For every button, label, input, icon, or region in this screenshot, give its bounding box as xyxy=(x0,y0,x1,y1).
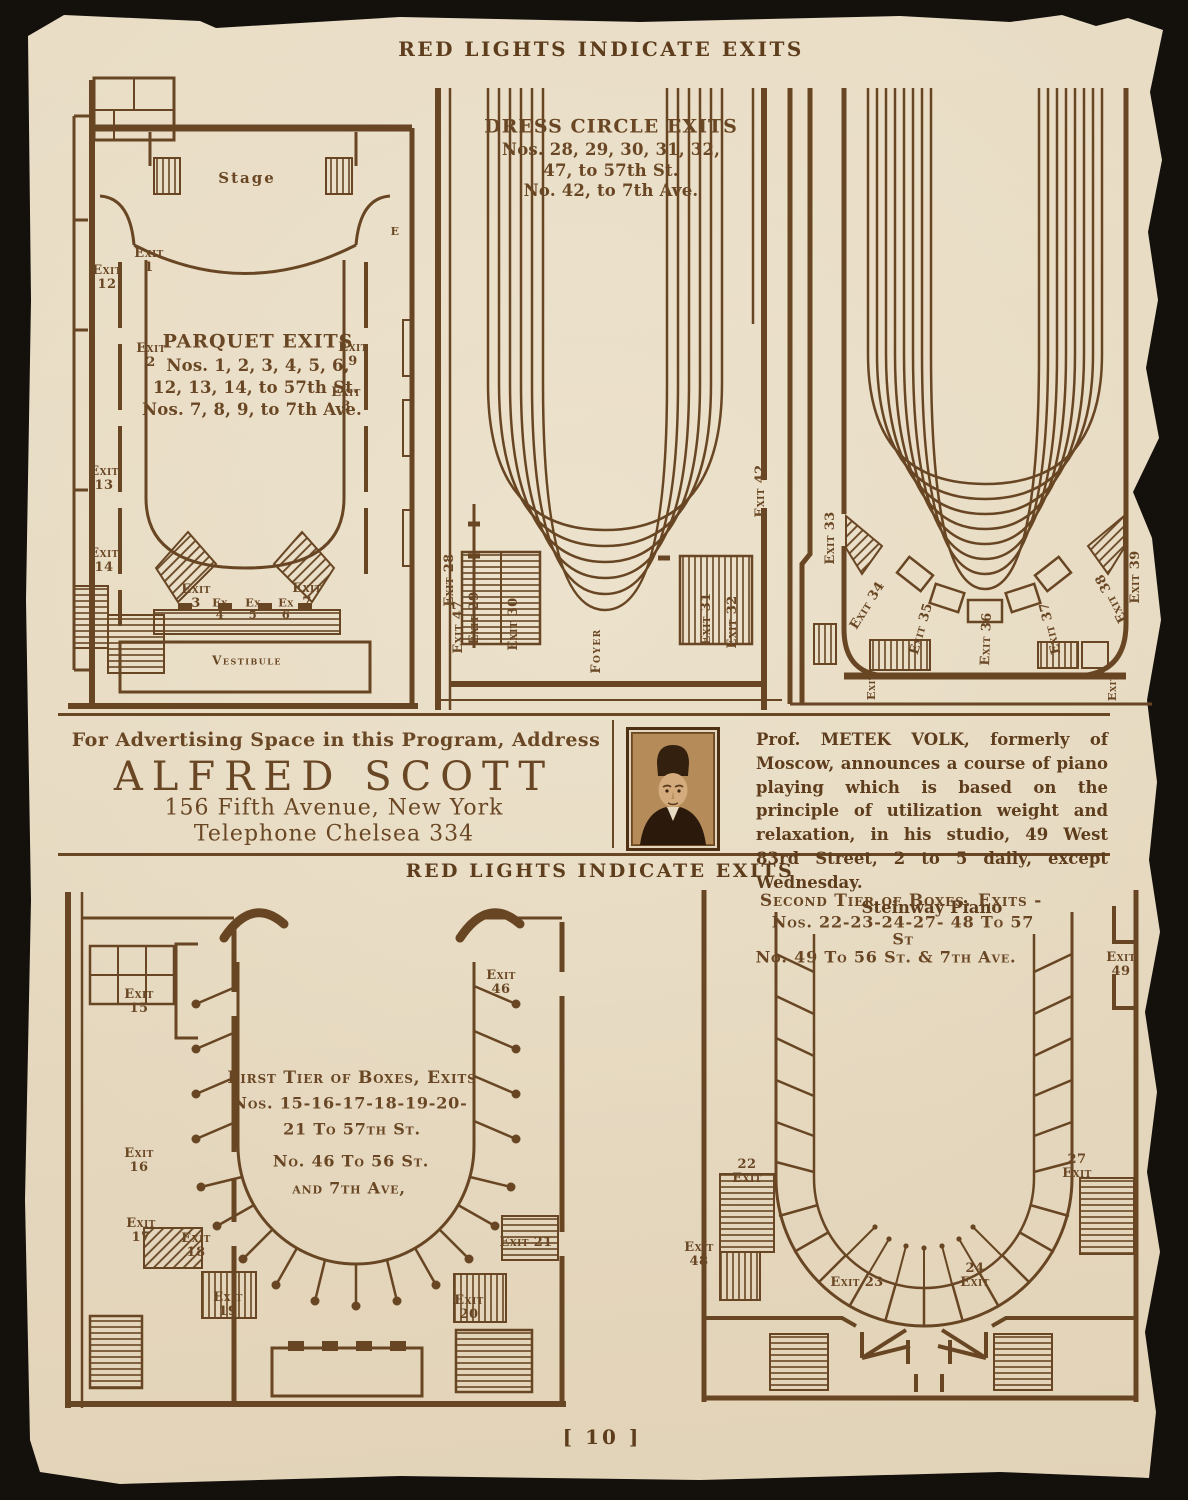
exit-12-label: Exit 12 xyxy=(92,264,121,292)
balcony-corner-right-exit-label: Exit xyxy=(1106,675,1118,701)
fez-hat xyxy=(657,745,689,776)
stage-label: Stage xyxy=(218,170,276,186)
second-tier-line2: Nos. 22-23-24-27- 48 To 57 St xyxy=(761,914,1046,949)
exit-9-label: Exit 9 xyxy=(338,341,367,369)
exit-31-label: Exit 31 xyxy=(700,592,714,645)
parquet-exits-title: PARQUET EXITS xyxy=(163,332,354,353)
exit-19-label: Exit 19 xyxy=(213,1291,242,1319)
exit-47-label: Exit 47 xyxy=(452,600,466,653)
exit-17-label: Exit 17 xyxy=(126,1217,155,1245)
balcony-plan-figure xyxy=(780,84,1158,716)
exit-18-label: Exit 18 xyxy=(181,1232,210,1260)
exit-22-label: 22 Exit xyxy=(732,1158,761,1186)
exit-36-label: Exit 36 xyxy=(979,612,995,666)
exit-32-label: Exit 32 xyxy=(726,595,740,648)
exit-15-label: Exit 15 xyxy=(124,988,153,1016)
dress-circle-line1: Nos. 28, 29, 30, 31, 32, xyxy=(502,141,720,159)
exit-48-label: Exit 48 xyxy=(684,1241,713,1269)
balcony-corner-left-exit-label: Exit xyxy=(865,674,877,700)
parquet-exits-line2: 12, 13, 14, to 57th St. xyxy=(153,379,359,397)
foyer-label: Foyer xyxy=(590,628,604,673)
first-tier-line2: Nos. 15-16-17-18-19-20- xyxy=(232,1094,467,1111)
exit-1-label: Exit 1 xyxy=(134,247,163,275)
volk-prefix: Prof. xyxy=(756,730,800,749)
program-page: RED LIGHTS INDICATE EXITS RED LIGHTS IND… xyxy=(0,0,1188,1500)
metek-volk-photo xyxy=(626,727,720,851)
ad-left-address: 156 Fifth Avenue, New York xyxy=(164,796,503,821)
exit-27-label: 27 Exit xyxy=(1062,1153,1091,1181)
exit-8-label: Exit 8 xyxy=(331,386,360,414)
exit-42-label: Exit 42 xyxy=(754,464,768,517)
page-number: [ 10 ] xyxy=(563,1425,642,1449)
first-tier-line4: No. 46 To 56 St. xyxy=(273,1152,429,1169)
red-lights-heading-top: RED LIGHTS INDICATE EXITS xyxy=(398,37,804,61)
exit-16-label: Exit 16 xyxy=(124,1147,153,1175)
exit-20-label: Exit 20 xyxy=(454,1294,483,1322)
exit-13-label: Exit 13 xyxy=(89,465,118,493)
exit-3-label: Exit 3 xyxy=(181,583,210,611)
exit-14-label: Exit 14 xyxy=(89,547,118,575)
exit-4-label: Ex 4 xyxy=(212,597,228,622)
dress-circle-line2: 47, to 57th St. xyxy=(543,162,678,180)
exit-e-label: E xyxy=(391,226,400,238)
ad-divider-vertical xyxy=(612,720,614,848)
second-tier-title: Second Tier of Boxes. Exits - xyxy=(760,892,1042,910)
ad-left-line1: For Advertising Space in this Program, A… xyxy=(72,729,601,751)
volk-body: formerly of Moscow, announces a course o… xyxy=(756,730,1108,892)
parquet-exits-line1: Nos. 1, 2, 3, 4, 5, 6, xyxy=(166,357,349,375)
volk-name: METEK VOLK, xyxy=(821,730,970,749)
exit-49-label: Exit 49 xyxy=(1106,951,1135,979)
exit-21-label: Exit 21 xyxy=(499,1236,552,1250)
ad-left-name: ALFRED SCOTT xyxy=(114,754,554,800)
exit-7-label: Exit 7 xyxy=(292,582,321,610)
vestibule-label: Vestibule xyxy=(212,655,282,668)
exit-29-label: Exit 29 xyxy=(468,591,482,644)
exit-23-label: Exit 23 xyxy=(830,1276,883,1290)
exit-39-label: Exit 39 xyxy=(1129,550,1143,603)
exit-28-label: Exit 28 xyxy=(443,553,457,606)
dress-circle-line3: No. 42, to 7th Ave. xyxy=(524,182,699,200)
second-tier-line3: No. 49 To 56 St. & 7th Ave. xyxy=(756,948,1017,965)
first-tier-line3: 21 To 57th St. xyxy=(283,1120,421,1137)
first-tier-title: First Tier of Boxes, Exits xyxy=(227,1069,476,1087)
dress-circle-exits-title: DRESS CIRCLE EXITS xyxy=(484,117,738,138)
exit-5-label: Ex 5 xyxy=(245,597,261,622)
exit-46-label: Exit 46 xyxy=(486,969,515,997)
exit-2-label: Exit 2 xyxy=(136,342,165,370)
exit-33-label: Exit 33 xyxy=(824,511,838,564)
first-tier-line5: and 7th Ave, xyxy=(292,1179,405,1196)
ad-left-phone: Telephone Chelsea 334 xyxy=(194,822,474,847)
parquet-exits-line3: Nos. 7, 8, 9, to 7th Ave. xyxy=(142,401,362,419)
exit-30-label: Exit 30 xyxy=(507,597,521,650)
exit-24-label: 24 Exit xyxy=(960,1262,989,1290)
